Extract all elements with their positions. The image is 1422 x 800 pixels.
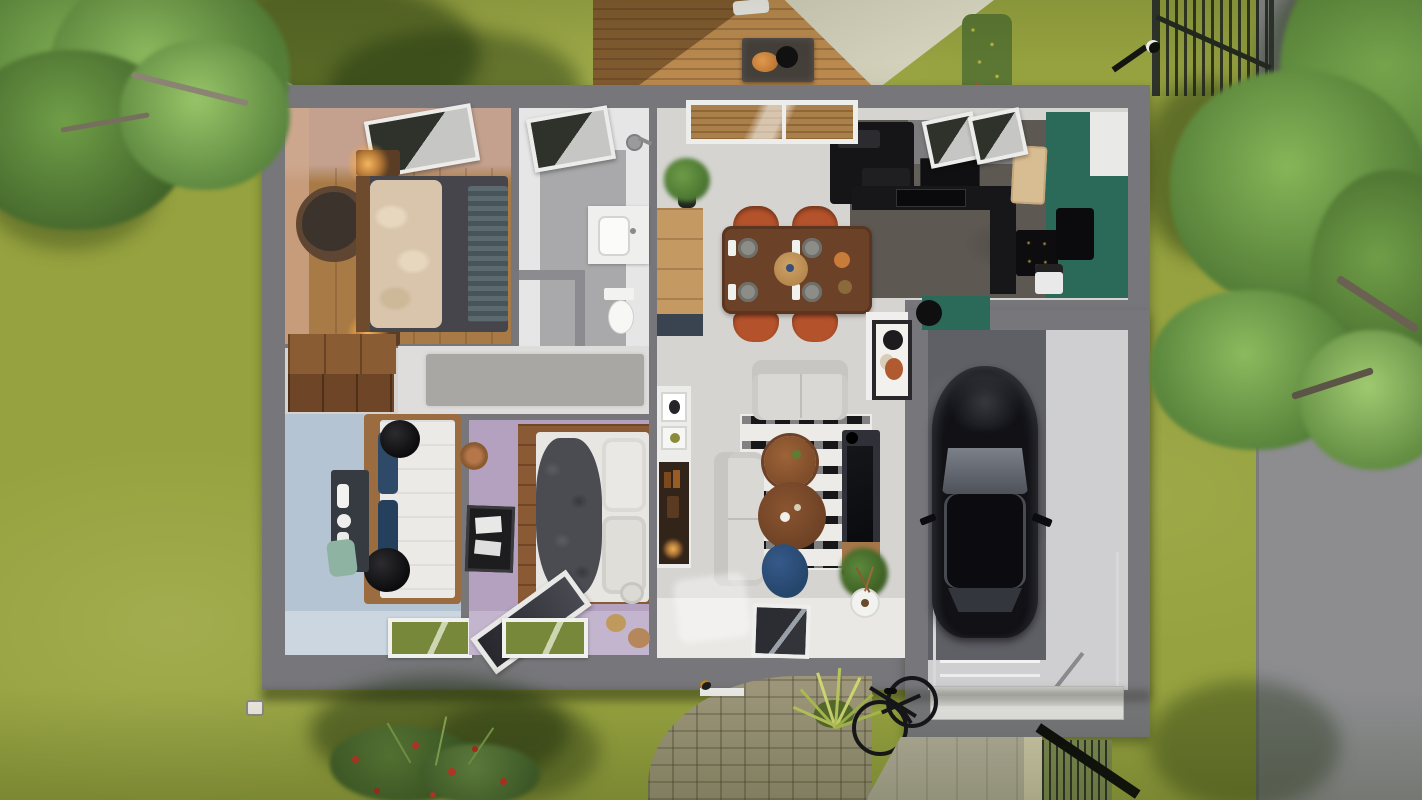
- pouf-white: [620, 582, 644, 604]
- shelf-lamp: [662, 538, 684, 560]
- wc-wall: [575, 270, 585, 346]
- coffee-machine: [1035, 264, 1063, 294]
- runner-rug: [426, 354, 644, 406]
- coffee-table-large: [758, 482, 826, 550]
- tree-shadow: [1150, 680, 1340, 800]
- floor-bag: [628, 628, 650, 648]
- wall-medallion: [460, 442, 488, 470]
- car-body: [932, 366, 1038, 638]
- cushion-teal: [326, 538, 358, 577]
- double-bed: [356, 176, 508, 332]
- loveseat: [714, 452, 764, 586]
- entry-round-mirror: [916, 300, 942, 326]
- toilet-tank: [604, 288, 634, 300]
- floor-bag: [606, 614, 626, 632]
- sink: [598, 216, 630, 256]
- car-hood-shine: [942, 374, 1028, 430]
- wardrobe: [288, 374, 394, 412]
- rose-flower: [448, 768, 456, 776]
- vanity: [588, 206, 649, 264]
- sideboard: [657, 208, 703, 336]
- rose-flower: [374, 788, 380, 794]
- car-rear-window: [948, 588, 1022, 612]
- tv-screen: [847, 446, 873, 542]
- wall-frame-small: [661, 426, 687, 450]
- fridge: [1056, 208, 1094, 260]
- pillow: [602, 516, 646, 594]
- street-lamp-head: [1146, 40, 1160, 53]
- decor-vase: [850, 588, 880, 618]
- hallway: [398, 346, 649, 414]
- rose-flower: [412, 742, 419, 749]
- flower-bed: [962, 14, 1012, 94]
- driveway-strip: [1024, 737, 1042, 800]
- wardrobe: [288, 334, 396, 374]
- sofa: [752, 360, 848, 420]
- wall-art-frame: [465, 505, 515, 573]
- window-bedroom-blue: [388, 618, 472, 658]
- food-bowl: [838, 280, 852, 294]
- car-windshield: [942, 448, 1028, 494]
- single-bed-purple: [536, 432, 649, 602]
- kitchen-sink: [896, 189, 966, 207]
- wall-frame-small: [661, 392, 687, 422]
- house-plant: [664, 158, 710, 202]
- garden-lamp-head: [246, 700, 264, 716]
- faucet: [630, 228, 636, 234]
- bbq-grill: [742, 38, 814, 82]
- toilet: [608, 300, 634, 334]
- sliding-glass-door: [686, 100, 858, 144]
- bicycle-saddle: [884, 688, 897, 694]
- rose-flower: [472, 746, 478, 752]
- front-door-window: [751, 603, 811, 659]
- rose-flower: [352, 756, 359, 763]
- floorplan-3d-viewport[interactable]: [0, 0, 1422, 800]
- street-lamp: [1112, 45, 1148, 73]
- window-bedroom-purple: [502, 618, 588, 658]
- rose-flower: [500, 778, 507, 785]
- coffee-table-small: [764, 436, 816, 488]
- floor-light-patch: [672, 572, 751, 644]
- fluffy-blanket: [536, 438, 602, 596]
- kitchen-white-corner: [1090, 112, 1128, 176]
- car-roof: [944, 494, 1026, 588]
- spigot: [700, 680, 711, 690]
- dining-table: [722, 226, 872, 314]
- slat-fence: [1042, 740, 1112, 800]
- pouf-black: [364, 548, 410, 592]
- wall-art: [872, 320, 912, 400]
- pillow: [602, 438, 646, 512]
- pouf-black: [380, 420, 420, 458]
- rose-flower: [430, 792, 436, 798]
- door-rail: [1116, 552, 1119, 688]
- food-bowl: [834, 252, 850, 268]
